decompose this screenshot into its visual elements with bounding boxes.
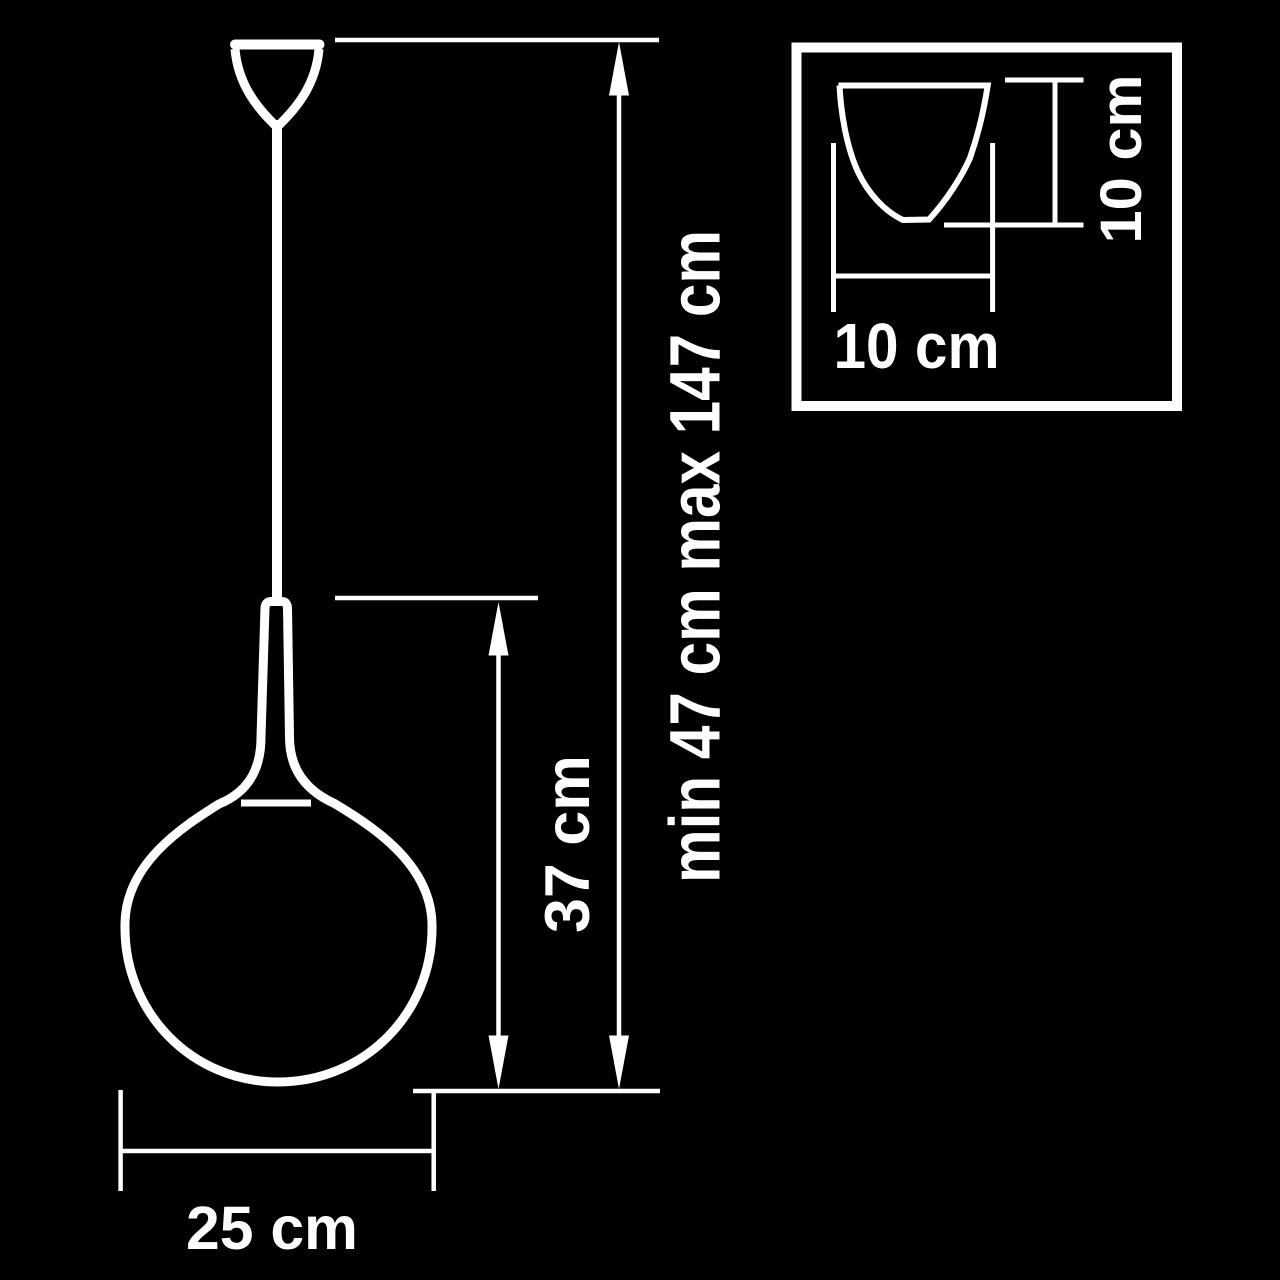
svg-text:25 cm: 25 cm: [186, 1194, 358, 1263]
svg-text:10 cm: 10 cm: [1089, 75, 1154, 244]
svg-text:10 cm: 10 cm: [834, 310, 1000, 382]
svg-text:37 cm: 37 cm: [533, 755, 603, 933]
svg-text:min 47 cm max 147 cm: min 47 cm max 147 cm: [657, 230, 736, 883]
